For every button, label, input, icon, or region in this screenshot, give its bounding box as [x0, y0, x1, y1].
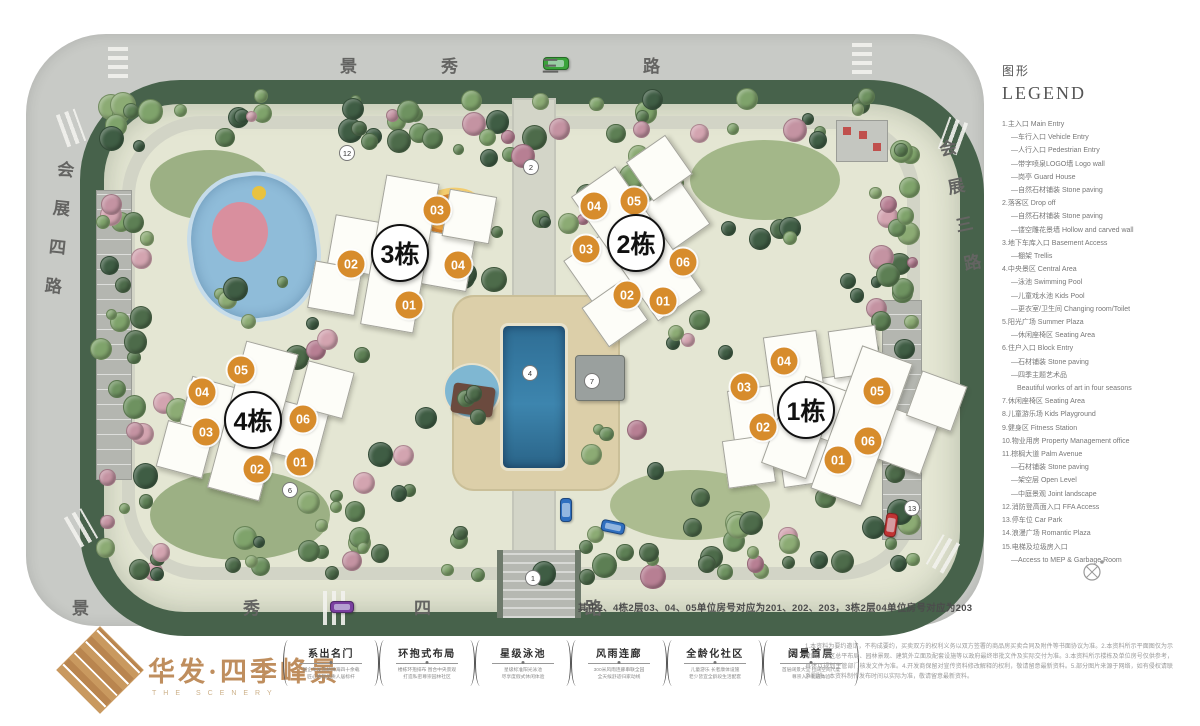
tree-green: [831, 550, 854, 573]
legend-ref-marker: 12: [339, 145, 355, 161]
paren-left: [475, 640, 485, 686]
tree-green: [579, 569, 594, 584]
tree-green: [558, 213, 579, 234]
tree-green: [223, 277, 248, 302]
tree-green: [606, 124, 625, 143]
tree-green: [106, 309, 117, 320]
tree-green: [810, 551, 828, 569]
car-blue: [560, 498, 572, 522]
road-char: 三: [542, 52, 559, 77]
legend-ref-marker: 2: [523, 159, 539, 175]
legend-item: 12.消防登高面入口 FFA Access: [1002, 501, 1194, 514]
legend-item: —儿童戏水池 Kids Pool: [1002, 290, 1194, 303]
unit-badge: 01: [396, 292, 423, 319]
legend-item: —棚架 Trellis: [1002, 250, 1194, 263]
legend-ref-marker: 6: [282, 482, 298, 498]
legend-ref-marker: 7: [584, 373, 600, 389]
paren-left: [571, 640, 581, 686]
tree-green: [906, 553, 919, 566]
unit-badge: 06: [855, 428, 882, 455]
tree-green: [330, 501, 342, 513]
tree-green: [130, 306, 152, 328]
paren-left: [379, 640, 389, 686]
slide-feature: [212, 202, 268, 262]
building-label: 3栋: [371, 224, 429, 282]
tree-green: [894, 143, 908, 157]
legend-item: 9.健身区 Fitness Station: [1002, 422, 1194, 435]
legend-item: 15.电梯及垃圾房入口: [1002, 541, 1194, 554]
tree-pink: [783, 118, 807, 142]
tree-green: [739, 511, 763, 535]
tree-green: [897, 207, 915, 225]
legend-item: —石材铺装 Stone paving: [1002, 356, 1194, 369]
feature-desc: 国企华发深耕珠海四十余载匠心铸就品质人居标杆: [297, 667, 365, 680]
tree-green: [532, 93, 549, 110]
site-plan-page: 景秀三路 景秀四路 会展四路 会展三路 其中2、4栋2层03、04、05单位房号…: [0, 0, 1200, 726]
tree-pink: [353, 472, 376, 495]
legend-item: —车行入口 Vehicle Entry: [1002, 131, 1194, 144]
legend-item: 3.地下车库入口 Basement Access: [1002, 237, 1194, 250]
paren-left: [283, 640, 293, 686]
brand-logo: [58, 628, 143, 713]
legend-title-zh: 图形: [1002, 62, 1194, 79]
tree-green: [119, 503, 130, 514]
unit-badge: 04: [771, 348, 798, 375]
paren-right: [369, 640, 379, 686]
unit-badge: 02: [338, 251, 365, 278]
road-char: 路: [643, 52, 660, 77]
tree-green: [668, 325, 684, 341]
legend-item: 8.儿童游乐场 Kids Playground: [1002, 408, 1194, 421]
feature-title: 星级泳池: [487, 645, 559, 660]
building-label: 1栋: [777, 381, 835, 439]
pavilion: [575, 355, 625, 401]
feature-divider: [684, 663, 746, 664]
tree-green: [371, 544, 389, 562]
feature-divider: [396, 663, 458, 664]
tree-green: [899, 177, 920, 198]
tree-green: [592, 553, 617, 578]
tree-pink: [152, 543, 171, 562]
legend-item: 11.棕榈大道 Palm Avenue: [1002, 448, 1194, 461]
tree-green: [683, 518, 701, 536]
legend-item: Beautiful works of art in four seasons: [1002, 382, 1194, 395]
feature-divider: [300, 663, 362, 664]
road-char: 景: [340, 52, 357, 77]
tree-pink: [100, 515, 114, 529]
tree-pink: [99, 469, 116, 486]
tree-green: [466, 385, 483, 402]
legend-item: —石材铺装 Stone paving: [1002, 461, 1194, 474]
tree-green: [140, 231, 155, 246]
unit-badge: 03: [731, 374, 758, 401]
legend-item: 10.物业用房 Property Management office: [1002, 435, 1194, 448]
tree-green: [345, 501, 365, 521]
tree-green: [691, 488, 710, 507]
legend-item: 7.休闲座椅区 Seating Area: [1002, 395, 1194, 408]
disclaimer-text: 1.本资料为要约邀请，不构成要约，买卖双方的权利义务以双方签署的商品房买卖合同及…: [805, 642, 1173, 682]
compass-icon: [1078, 556, 1108, 586]
legend-item: 14.浪漫广场 Romantic Plaza: [1002, 527, 1194, 540]
legend-ref-marker: 4: [522, 365, 538, 381]
tree-green: [368, 442, 393, 467]
tree-green: [357, 542, 369, 554]
feature-title: 全龄化社区: [679, 645, 751, 660]
tree-green: [354, 347, 369, 362]
legend-item: —休闲座椅区 Seating Area: [1002, 329, 1194, 342]
legend-item: —自然石材铺装 Stone paving: [1002, 210, 1194, 223]
tree-green: [90, 338, 112, 360]
tree-green: [330, 490, 342, 502]
tree-green: [150, 567, 164, 581]
tree-green: [108, 380, 126, 398]
feature-desc: 300米风雨连廊串联全园全天候舒适归家动线: [585, 667, 653, 680]
tree-pink: [126, 422, 144, 440]
tree-green: [491, 226, 503, 238]
unit-badge: 05: [621, 188, 648, 215]
play-dot: [252, 186, 266, 200]
tree-green: [453, 526, 467, 540]
unit-badge: 01: [825, 447, 852, 474]
tree-green: [124, 330, 148, 354]
feature-desc: 儿童游乐 长者康体设施老少皆宜全龄段生活配套: [681, 667, 749, 680]
tree-green: [904, 315, 918, 329]
unit-number-note: 其中2、4栋2层03、04、05单位房号对应为201、202、203，3栋2层0…: [578, 600, 972, 614]
legend-item: 4.中央景区 Central Area: [1002, 263, 1194, 276]
swimming-pool: [500, 323, 568, 471]
tree-green: [441, 564, 453, 576]
tree-green: [852, 103, 864, 115]
feature-item: 风雨连廊300米风雨连廊串联全园全天候舒适归家动线: [571, 640, 667, 686]
legend-item: 6.住户入口 Block Entry: [1002, 342, 1194, 355]
tree-green: [99, 126, 124, 151]
tree-green: [139, 494, 153, 508]
tree-green: [133, 463, 158, 488]
selling-points: 系出名门国企华发深耕珠海四十余载匠心铸就品质人居标杆环抱式布局楼栋环抱排布 围合…: [283, 640, 801, 686]
tree-green: [391, 485, 407, 501]
paren-left: [667, 640, 677, 686]
tree-green: [96, 538, 115, 557]
tree-green: [342, 98, 364, 120]
unit-badge: 04: [189, 379, 216, 406]
feature-divider: [492, 663, 554, 664]
tree-green: [361, 133, 378, 150]
unit-badge: 03: [573, 236, 600, 263]
feature-item: 星级泳池星级标准阳光泳池尽享度假式休闲体验: [475, 640, 571, 686]
tree-green: [315, 519, 327, 531]
unit-badge: 06: [670, 249, 697, 276]
unit-badge: 02: [750, 414, 777, 441]
tree-green: [96, 215, 110, 229]
tree-pink: [131, 248, 151, 268]
legend-item: 2.落客区 Drop off: [1002, 197, 1194, 210]
tree-pink: [880, 196, 897, 213]
feature-item: 环抱式布局楼栋环抱排布 围合中央景观打造私密尊崇园林社区: [379, 640, 475, 686]
tree-pink: [907, 257, 918, 268]
unit-badge: 03: [424, 197, 451, 224]
tree-green: [717, 564, 732, 579]
tree-green: [736, 88, 758, 110]
tree-green: [721, 221, 736, 236]
crosswalk: [852, 42, 872, 74]
tree-green: [589, 97, 603, 111]
unit-badge: 02: [614, 282, 641, 309]
tree-green: [415, 407, 437, 429]
legend-item: —镂空雕花景墙 Hollow and carved wall: [1002, 224, 1194, 237]
tree-green: [471, 568, 485, 582]
tree-green: [298, 540, 320, 562]
legend-item: 13.停车位 Car Park: [1002, 514, 1194, 527]
crosswalk: [108, 44, 128, 78]
unit-badge: 05: [228, 357, 255, 384]
tree-pink: [627, 420, 647, 440]
paren-right: [657, 640, 667, 686]
legend-panel: 图形 LEGEND 1.主入口 Main Entry—车行入口 Vehicle …: [1002, 62, 1194, 567]
unit-badge: 04: [581, 193, 608, 220]
legend-item: —岗亭 Guard House: [1002, 171, 1194, 184]
tree-green: [581, 444, 601, 464]
feature-title: 系出名门: [295, 645, 367, 660]
feature-title: 风雨连廊: [583, 645, 655, 660]
lawn: [690, 140, 840, 220]
tree-pink: [640, 564, 666, 590]
paren-right: [465, 640, 475, 686]
tree-green: [225, 557, 241, 573]
tree-green: [123, 395, 146, 418]
road-char: 秀: [441, 52, 458, 77]
tree-green: [616, 544, 634, 562]
tree-green: [470, 409, 485, 424]
paren-left: [763, 640, 773, 686]
tree-green: [215, 128, 234, 147]
tree-green: [782, 556, 795, 569]
feature-item: 系出名门国企华发深耕珠海四十余载匠心铸就品质人居标杆: [283, 640, 379, 686]
road-label-top: 景秀三路: [340, 52, 660, 77]
tree-pink: [101, 194, 122, 215]
legend-item: —人行入口 Pedestrian Entry: [1002, 144, 1194, 157]
building-label: 4栋: [224, 391, 282, 449]
unit-badge: 01: [650, 288, 677, 315]
brand-subtitle: THE SCENERY: [152, 690, 279, 697]
road-char: 景: [72, 594, 89, 619]
road-char: 四: [414, 594, 431, 619]
road-label-bottom: 景秀四路: [72, 594, 602, 619]
unit-badge: 06: [290, 406, 317, 433]
legend-item: 5.阳光广场 Summer Plaza: [1002, 316, 1194, 329]
tree-green: [698, 555, 716, 573]
paren-right: [561, 640, 571, 686]
legend-item: —更衣室/卫生间 Changing room/Toilet: [1002, 303, 1194, 316]
fitness-court: [836, 120, 888, 162]
legend-item: —中庭景观 Joint landscape: [1002, 488, 1194, 501]
feature-desc: 星级标准阳光泳池尽享度假式休闲体验: [489, 667, 557, 680]
legend-item: —泳池 Swimming Pool: [1002, 276, 1194, 289]
paren-right: [753, 640, 763, 686]
tree-green: [253, 536, 265, 548]
unit-badge: 01: [287, 449, 314, 476]
tree-green: [642, 89, 663, 110]
unit-badge: 03: [193, 419, 220, 446]
building-label: 2栋: [607, 214, 665, 272]
tree-green: [138, 99, 163, 124]
tree-green: [885, 537, 897, 549]
legend-item: —自然石材铺装 Stone paving: [1002, 184, 1194, 197]
legend-ref-marker: 1: [525, 570, 541, 586]
legend-item: —带字喷泉LOGO墙 Logo wall: [1002, 158, 1194, 171]
unit-badge: 04: [445, 252, 472, 279]
unit-badge: 05: [864, 378, 891, 405]
tree-green: [174, 104, 187, 117]
unit-badge: 02: [244, 456, 271, 483]
legend-item: —四季主题艺术品: [1002, 369, 1194, 382]
tree-green: [481, 267, 507, 293]
feature-desc: 楼栋环抱排布 围合中央景观打造私密尊崇园林社区: [393, 667, 461, 680]
legend-title-en: LEGEND: [1002, 83, 1194, 104]
tree-green: [890, 555, 907, 572]
feature-item: 全龄化社区儿童游乐 长者康体设施老少皆宜全龄段生活配套: [667, 640, 763, 686]
road-char: 秀: [243, 594, 260, 619]
tree-green: [100, 256, 119, 275]
feature-divider: [588, 663, 650, 664]
tree-green: [325, 566, 339, 580]
tree-green: [647, 462, 665, 480]
feature-title: 环抱式布局: [391, 645, 463, 660]
legend-item: —架空层 Open Level: [1002, 474, 1194, 487]
tree-green: [747, 546, 760, 559]
legend-ref-marker: 13: [904, 500, 920, 516]
legend-item: 1.主入口 Main Entry: [1002, 118, 1194, 131]
tree-green: [749, 228, 771, 250]
tree-pink: [549, 118, 571, 140]
tree-pink: [393, 445, 414, 466]
